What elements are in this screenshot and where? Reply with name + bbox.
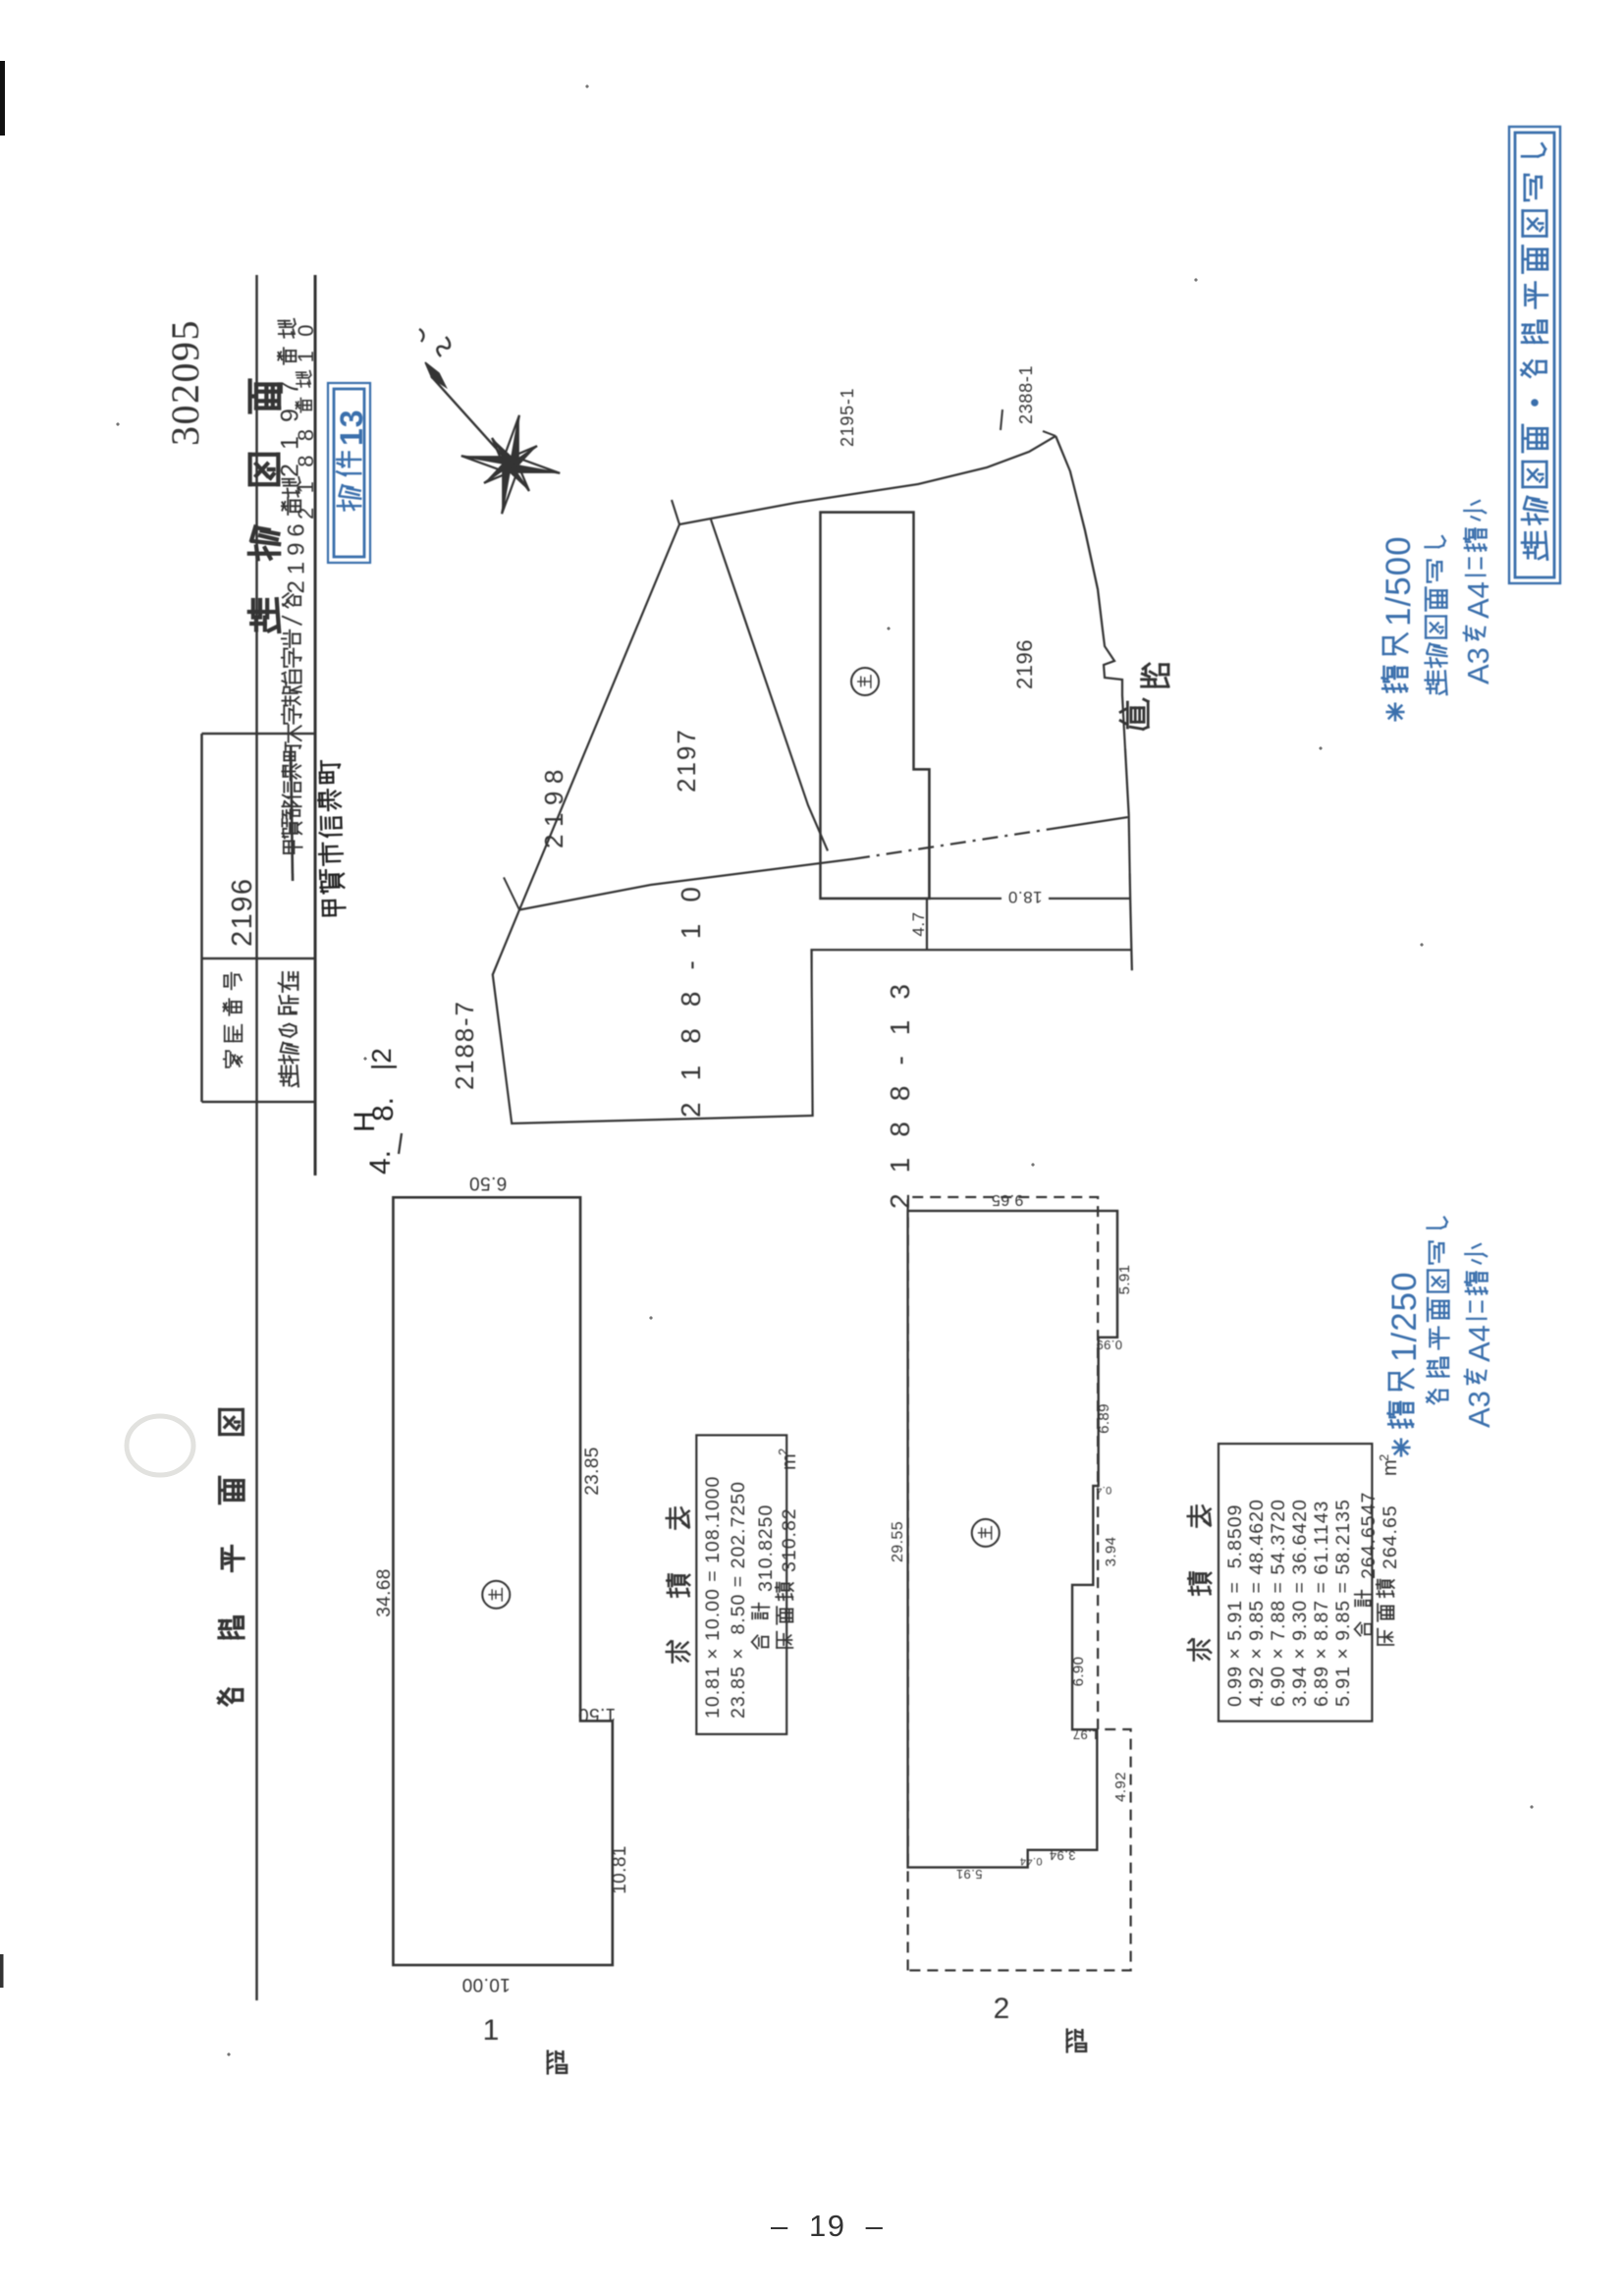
svg-text:– 19 –: – 19 –	[771, 2209, 884, 2243]
